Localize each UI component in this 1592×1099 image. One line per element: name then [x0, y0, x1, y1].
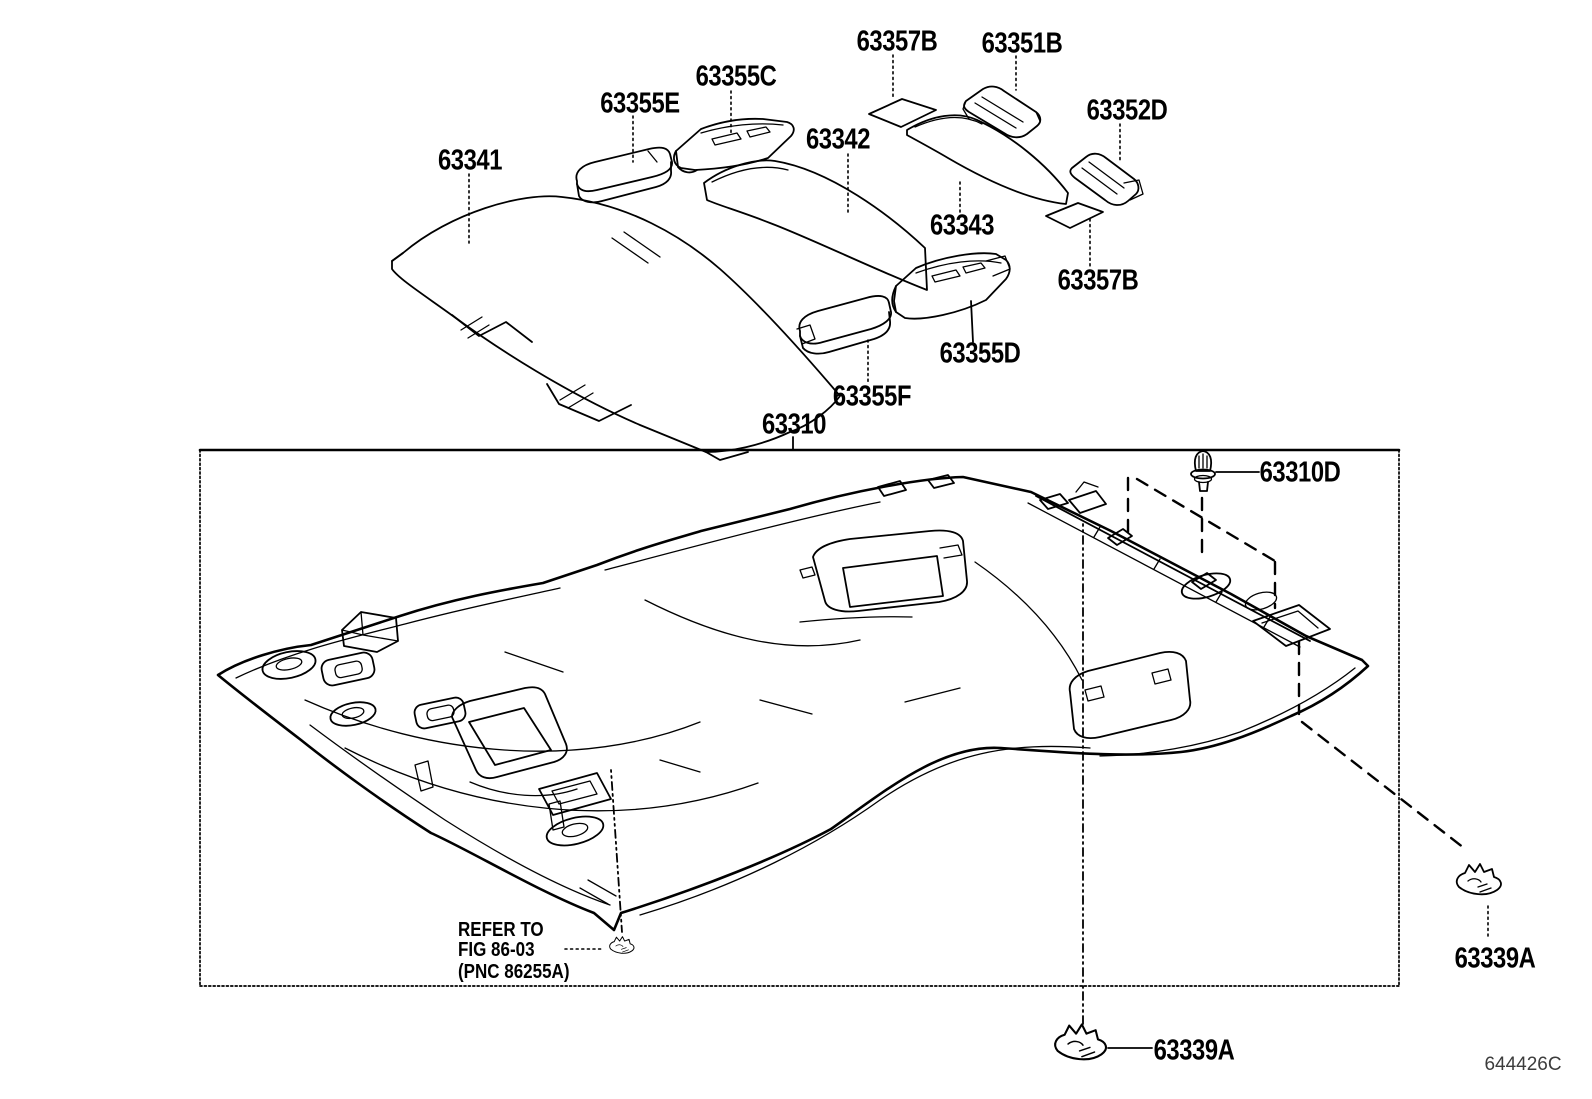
part-number-text: 63355C	[696, 63, 777, 92]
part-label-63357B-top[interactable]: 63357B	[848, 28, 947, 57]
part-63355C-pad	[674, 119, 794, 173]
part-63352D-reinforcement	[1070, 154, 1143, 205]
part-63355E-pad	[576, 148, 672, 203]
part-number-text: 63341	[438, 147, 502, 176]
part-63357B-mid-pad	[1046, 203, 1103, 228]
part-63342-silencer-pad	[704, 160, 927, 290]
assembly-box-border	[200, 450, 1399, 986]
part-label-63355F[interactable]: 63355F	[824, 383, 919, 412]
part-label-63355C[interactable]: 63355C	[687, 63, 786, 92]
part-label-63357B-mid[interactable]: 63357B	[1049, 267, 1148, 296]
part-label-63351B[interactable]: 63351B	[973, 30, 1072, 59]
part-label-63339A-bottom[interactable]: 63339A	[1145, 1037, 1244, 1066]
part-number-text: 63343	[930, 212, 994, 241]
refer-note-line2: FIG 86-03	[458, 940, 548, 960]
part-number-text: 63310D	[1260, 459, 1341, 488]
part-number-text: 63355D	[940, 340, 1021, 369]
part-63310-headlining-drawing	[218, 475, 1368, 930]
part-label-63355E[interactable]: 63355E	[592, 90, 689, 119]
part-63355F-pad	[797, 296, 891, 354]
part-label-63310D[interactable]: 63310D	[1251, 459, 1350, 488]
spring-clip-icon-refer	[610, 937, 634, 954]
part-number-text: 63339A	[1455, 945, 1536, 974]
callout-construction-lines	[565, 472, 1488, 1048]
part-63343-silencer-pad	[907, 115, 1068, 204]
part-label-63339A-right[interactable]: 63339A	[1446, 945, 1545, 974]
parts-diagram-page: 63357B 63351B 63355C 63355E 63352D 63342…	[0, 0, 1592, 1099]
part-label-63341[interactable]: 63341	[431, 147, 509, 176]
part-63355D-pad	[892, 253, 1010, 318]
part-number-text: 63355E	[600, 90, 680, 119]
part-label-63310[interactable]: 63310	[755, 411, 833, 440]
part-number-text: 63352D	[1087, 97, 1168, 126]
drawing-number: 644426C	[1484, 1054, 1561, 1076]
part-number-text: 63351B	[982, 30, 1063, 59]
part-label-63343[interactable]: 63343	[923, 212, 1001, 241]
part-63351B-reinforcement	[963, 87, 1040, 138]
part-number-text: 63339A	[1154, 1037, 1235, 1066]
spring-clip-icon-bottom	[1055, 1024, 1106, 1059]
part-number-text: 63342	[806, 126, 870, 155]
refer-note-line1: REFER TO	[458, 920, 559, 940]
part-number-text: 63310	[762, 411, 826, 440]
part-number-text: 63355F	[833, 383, 911, 412]
part-number-text: 63357B	[1058, 267, 1139, 296]
part-label-63355D[interactable]: 63355D	[931, 340, 1030, 369]
part-label-63352D[interactable]: 63352D	[1078, 97, 1177, 126]
part-label-63342[interactable]: 63342	[799, 126, 877, 155]
pin-clip-icon-63310d	[1191, 451, 1215, 491]
leader-lines	[469, 55, 1120, 450]
refer-note-line3: (PNC 86255A)	[458, 962, 589, 982]
diagram-canvas	[0, 0, 1592, 1099]
part-number-text: 63357B	[857, 28, 938, 57]
spring-clip-icon-right	[1457, 864, 1501, 894]
